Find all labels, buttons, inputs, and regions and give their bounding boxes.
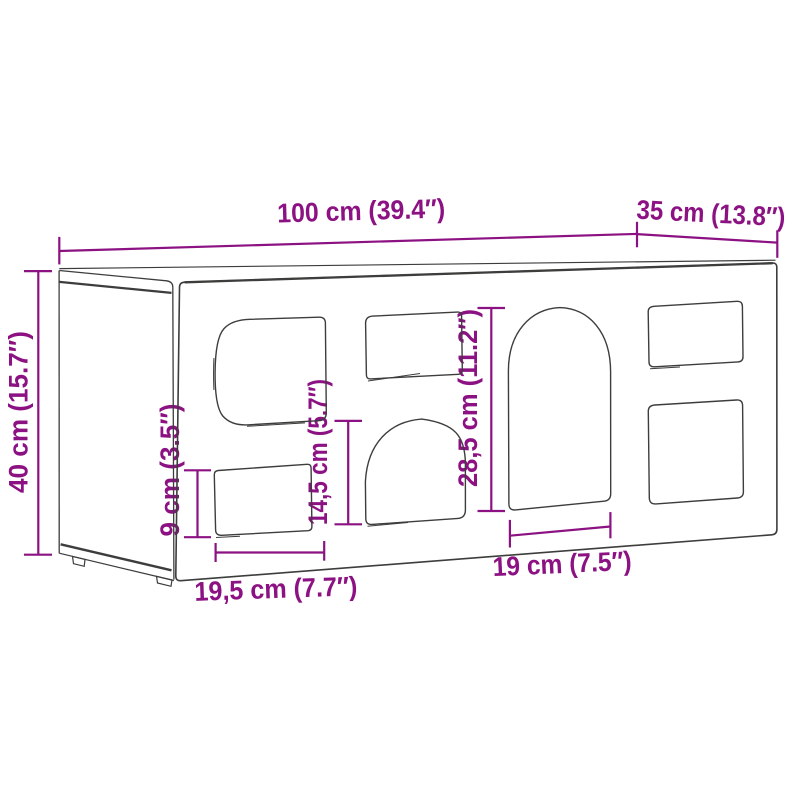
svg-text:14,5 cm (5.7″): 14,5 cm (5.7″) [303, 379, 333, 525]
svg-text:9 cm (3.5″): 9 cm (3.5″) [155, 404, 185, 537]
svg-text:28,5 cm (11.2″): 28,5 cm (11.2″) [453, 309, 483, 487]
svg-text:100 cm (39.4″): 100 cm (39.4″) [277, 194, 446, 229]
svg-text:19,5 cm (7.7″): 19,5 cm (7.7″) [194, 571, 358, 607]
svg-text:40 cm (15.7″): 40 cm (15.7″) [4, 331, 34, 493]
